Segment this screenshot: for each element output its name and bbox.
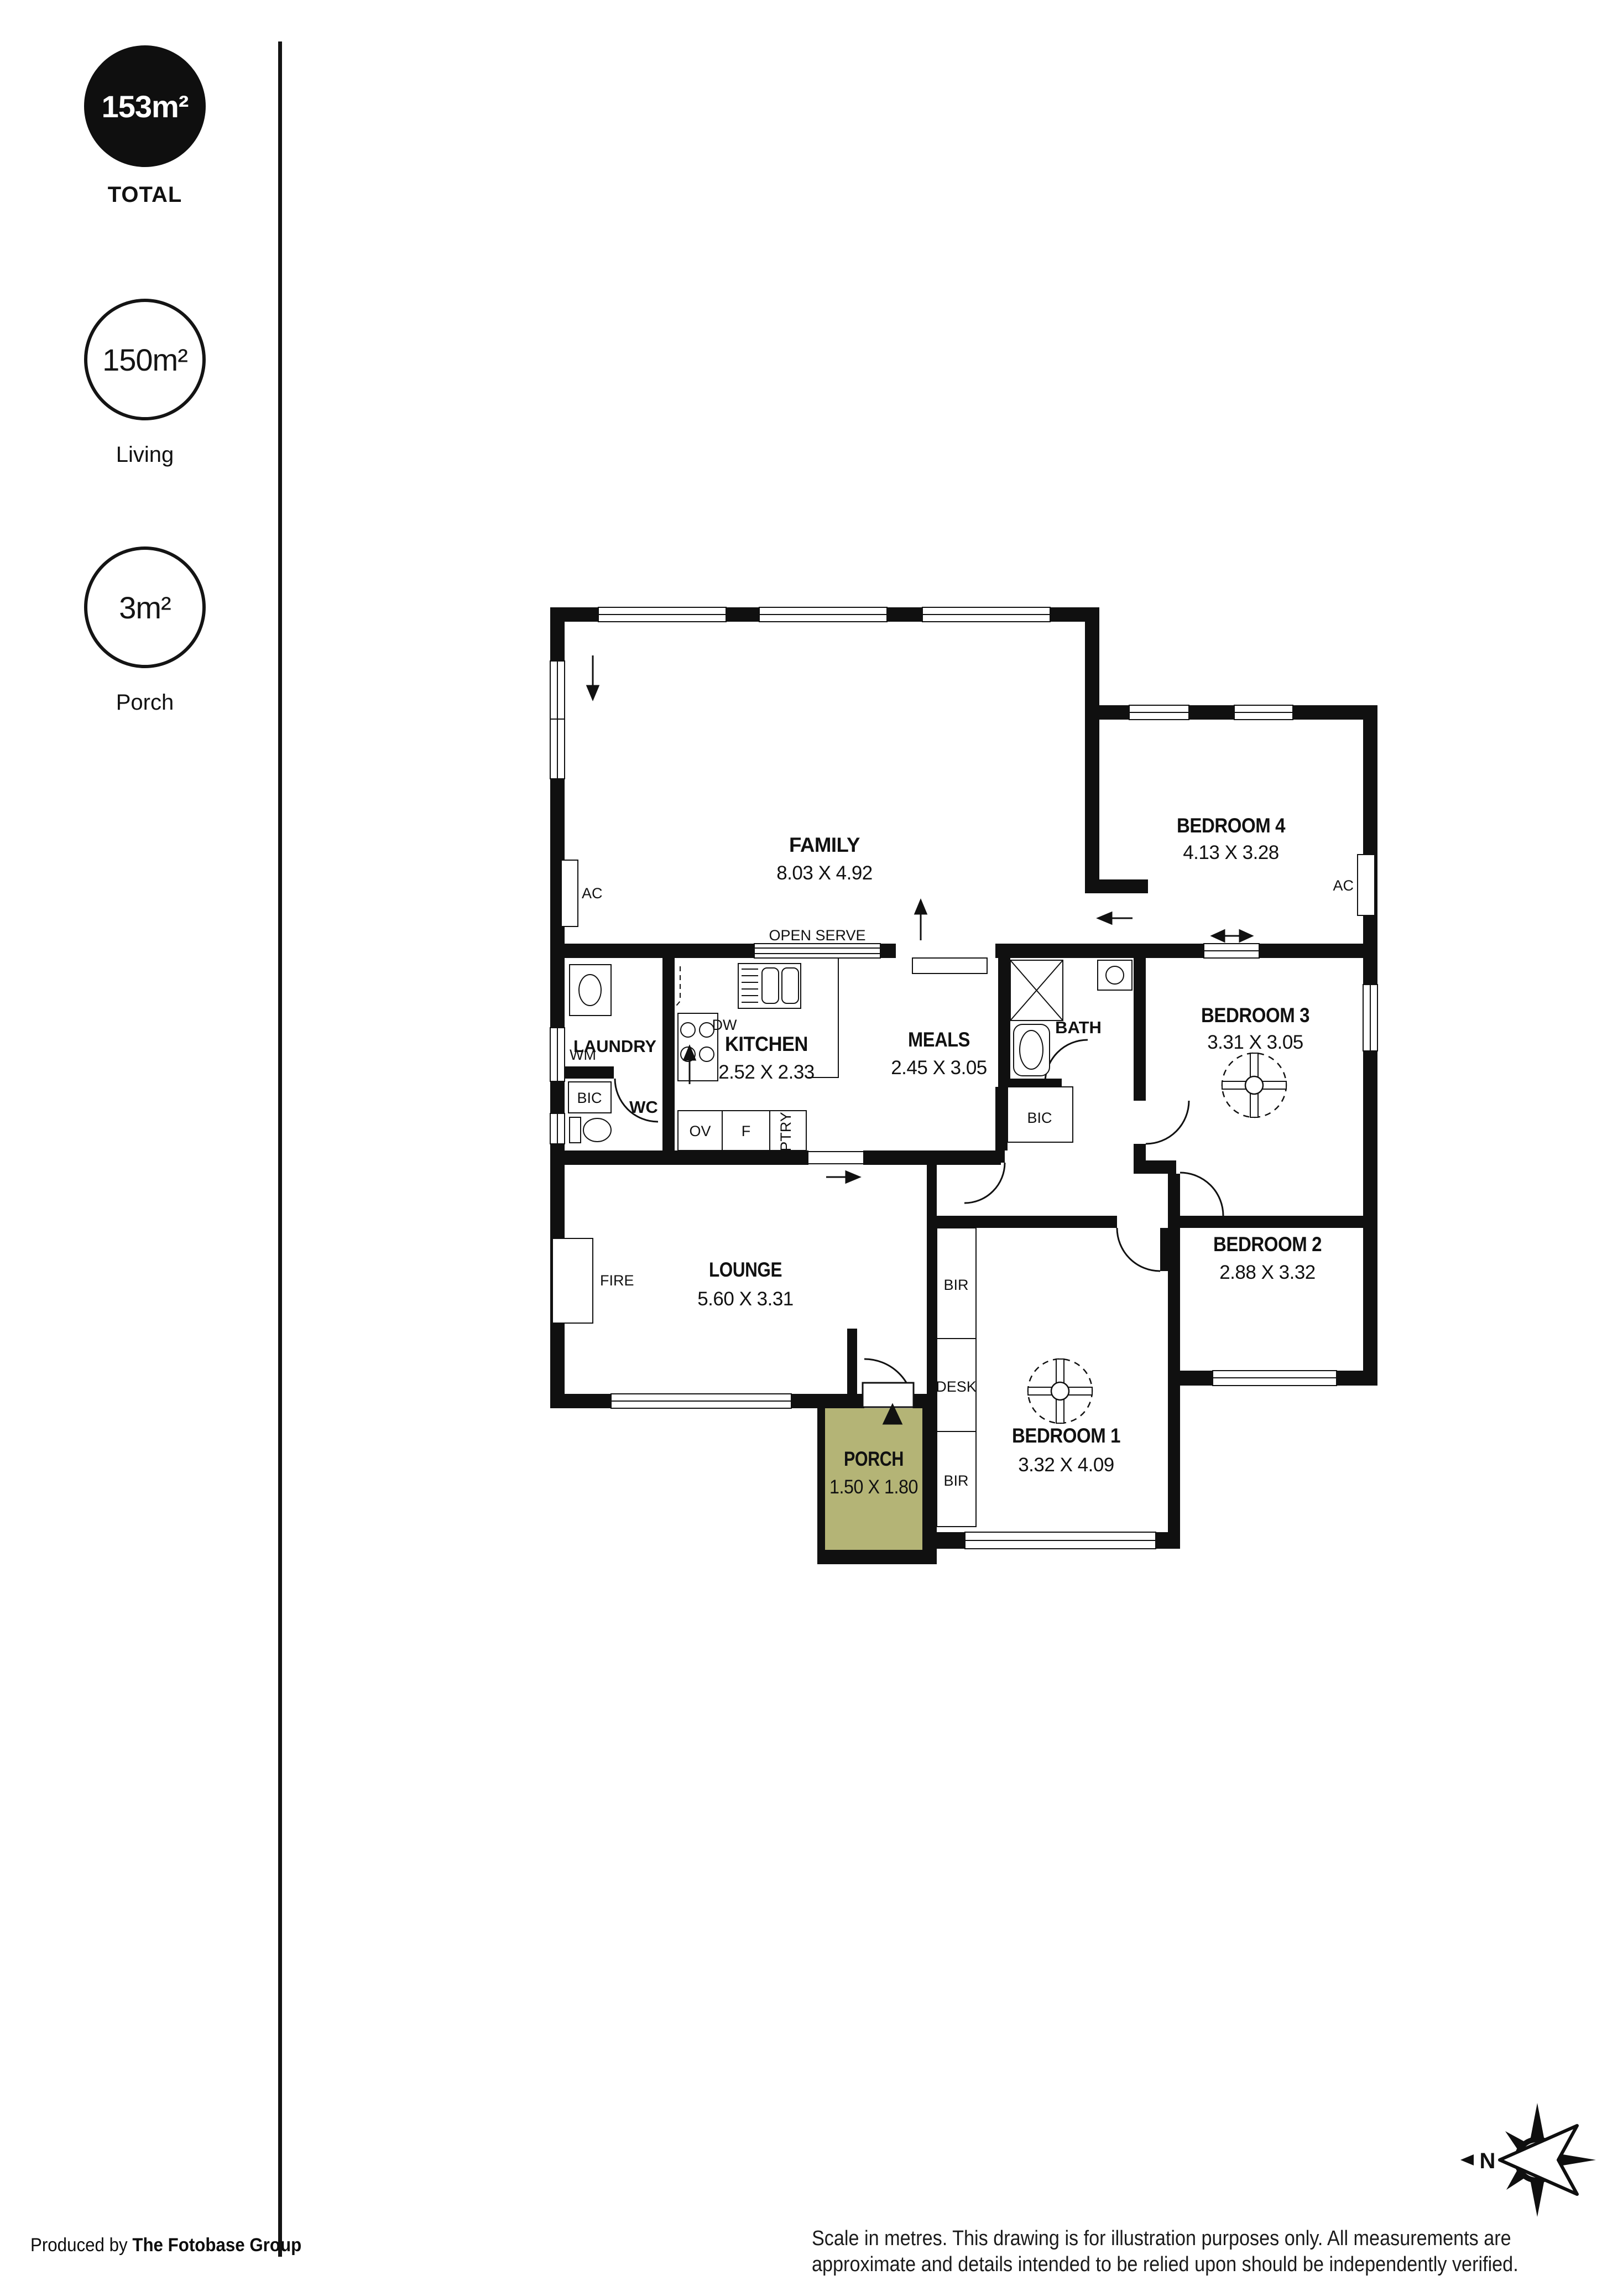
stat-living-value: 150m² xyxy=(102,342,187,378)
room-label-bedroom3: BEDROOM 3 xyxy=(1201,1004,1309,1027)
doorway-opening xyxy=(896,944,995,973)
floor-plan: FAMILY 8.03 X 4.92 BEDROOM 4 4.13 X 3.28… xyxy=(542,597,1388,1571)
stat-living-label: Living xyxy=(84,442,206,467)
label-wm: WM xyxy=(570,1047,596,1063)
disclaimer-line-1: Scale in metres. This drawing is for ill… xyxy=(812,2226,1608,2252)
window xyxy=(611,1394,791,1408)
vertical-divider xyxy=(278,41,282,2257)
toilet xyxy=(570,1117,611,1143)
arrow-right-hall xyxy=(826,1172,859,1183)
label-bic-laundry: BIC xyxy=(577,1090,602,1106)
window xyxy=(922,607,1050,622)
room-label-wc: WC xyxy=(629,1097,658,1117)
kitchen-counter xyxy=(806,958,838,1077)
doors xyxy=(615,1040,1223,1408)
room-label-meals: MEALS xyxy=(908,1028,970,1051)
porch-door-leaf xyxy=(863,1383,914,1407)
room-dims-meals: 2.45 X 3.05 xyxy=(891,1057,987,1079)
hall-door-arc xyxy=(964,1163,1005,1203)
window xyxy=(550,1028,565,1081)
room-label-family: FAMILY xyxy=(789,834,860,856)
arrow-left-bedroom4 xyxy=(1098,913,1133,924)
disclaimer: Scale in metres. This drawing is for ill… xyxy=(812,2226,1608,2278)
bath-sink xyxy=(1098,960,1132,990)
stat-porch-circle: 3m² xyxy=(84,546,206,668)
stat-total-circle: 153m² xyxy=(84,45,206,167)
room-label-bedroom2: BEDROOM 2 xyxy=(1213,1233,1322,1256)
disclaimer-line-2: approximate and details intended to be r… xyxy=(812,2252,1608,2278)
laundry-trough xyxy=(570,965,611,1016)
compass: N xyxy=(1438,2091,1615,2235)
label-ac-family: AC xyxy=(582,885,603,902)
produced-by-brand: The Fotobase Group xyxy=(132,2235,301,2256)
room-dims-porch: 1.50 X 1.80 xyxy=(829,1476,918,1498)
room-dims-bedroom3: 3.31 X 3.05 xyxy=(1207,1032,1303,1053)
stat-porch-value: 3m² xyxy=(119,590,170,626)
bathtub xyxy=(1014,1024,1050,1076)
fan-bedroom3 xyxy=(1222,1053,1286,1117)
compass-north-label: N xyxy=(1480,2149,1496,2173)
cased-opening xyxy=(808,1150,863,1165)
arrow-both-bedroom4 xyxy=(1212,930,1252,941)
window xyxy=(1363,985,1377,1051)
label-bir-bottom: BIR xyxy=(943,1472,968,1489)
room-dims-bedroom2: 2.88 X 3.32 xyxy=(1219,1262,1316,1283)
bath-door-arc xyxy=(1045,1040,1088,1082)
room-label-porch: PORCH xyxy=(844,1448,904,1470)
ac-unit-family xyxy=(561,860,578,926)
window xyxy=(965,1532,1156,1549)
window xyxy=(1234,705,1293,720)
window xyxy=(598,607,726,622)
kitchen-sink xyxy=(738,964,801,1008)
room-label-bedroom1: BEDROOM 1 xyxy=(1012,1424,1120,1447)
fireplace xyxy=(552,1238,593,1323)
produced-by: Produced by The Fotobase Group xyxy=(30,2235,301,2256)
stat-living-circle: 150m² xyxy=(84,299,206,420)
label-ac-bedroom4: AC xyxy=(1333,877,1354,894)
room-dims-bedroom4: 4.13 X 3.28 xyxy=(1183,842,1279,863)
room-dims-bedroom1: 3.32 X 4.09 xyxy=(1018,1454,1114,1476)
bedroom1-door-arc xyxy=(1117,1228,1160,1271)
label-bir-top: BIR xyxy=(943,1277,968,1293)
window xyxy=(550,1113,565,1144)
label-ptry: PTRY xyxy=(777,1112,794,1152)
label-desk: DESK xyxy=(936,1378,977,1395)
window xyxy=(550,661,565,779)
room-label-bedroom4: BEDROOM 4 xyxy=(1177,814,1286,837)
room-label-lounge: LOUNGE xyxy=(709,1258,782,1281)
label-open-serve: OPEN SERVE xyxy=(769,927,865,944)
arrow-down-family xyxy=(587,655,598,699)
label-fire: FIRE xyxy=(600,1272,634,1289)
bedroom3-door-arc xyxy=(1146,1101,1189,1144)
shower xyxy=(1010,960,1063,1021)
room-dims-lounge: 5.60 X 3.31 xyxy=(697,1288,794,1310)
window xyxy=(759,607,887,622)
label-ov: OV xyxy=(689,1123,711,1139)
stat-porch-label: Porch xyxy=(84,690,206,715)
label-dw: DW xyxy=(712,1017,737,1033)
fan-bedroom1 xyxy=(1028,1359,1092,1423)
window xyxy=(1129,705,1189,720)
window xyxy=(1213,1371,1337,1386)
bedroom2-door-arc xyxy=(1180,1173,1223,1216)
label-f: F xyxy=(742,1123,751,1139)
window xyxy=(1204,944,1259,958)
ac-unit-bedroom4 xyxy=(1358,855,1375,915)
open-serve-counter xyxy=(754,944,880,958)
stat-total-label: TOTAL xyxy=(84,183,206,207)
label-bic-bath: BIC xyxy=(1027,1110,1052,1126)
room-dims-kitchen: 2.52 X 2.33 xyxy=(718,1061,815,1083)
produced-by-prefix: Produced by xyxy=(30,2235,132,2256)
room-label-bath: BATH xyxy=(1055,1018,1102,1037)
room-dims-family: 8.03 X 4.92 xyxy=(776,862,873,884)
arrow-up-meals xyxy=(915,900,926,940)
stat-total-value: 153m² xyxy=(102,88,189,124)
room-label-kitchen: KITCHEN xyxy=(725,1033,808,1055)
